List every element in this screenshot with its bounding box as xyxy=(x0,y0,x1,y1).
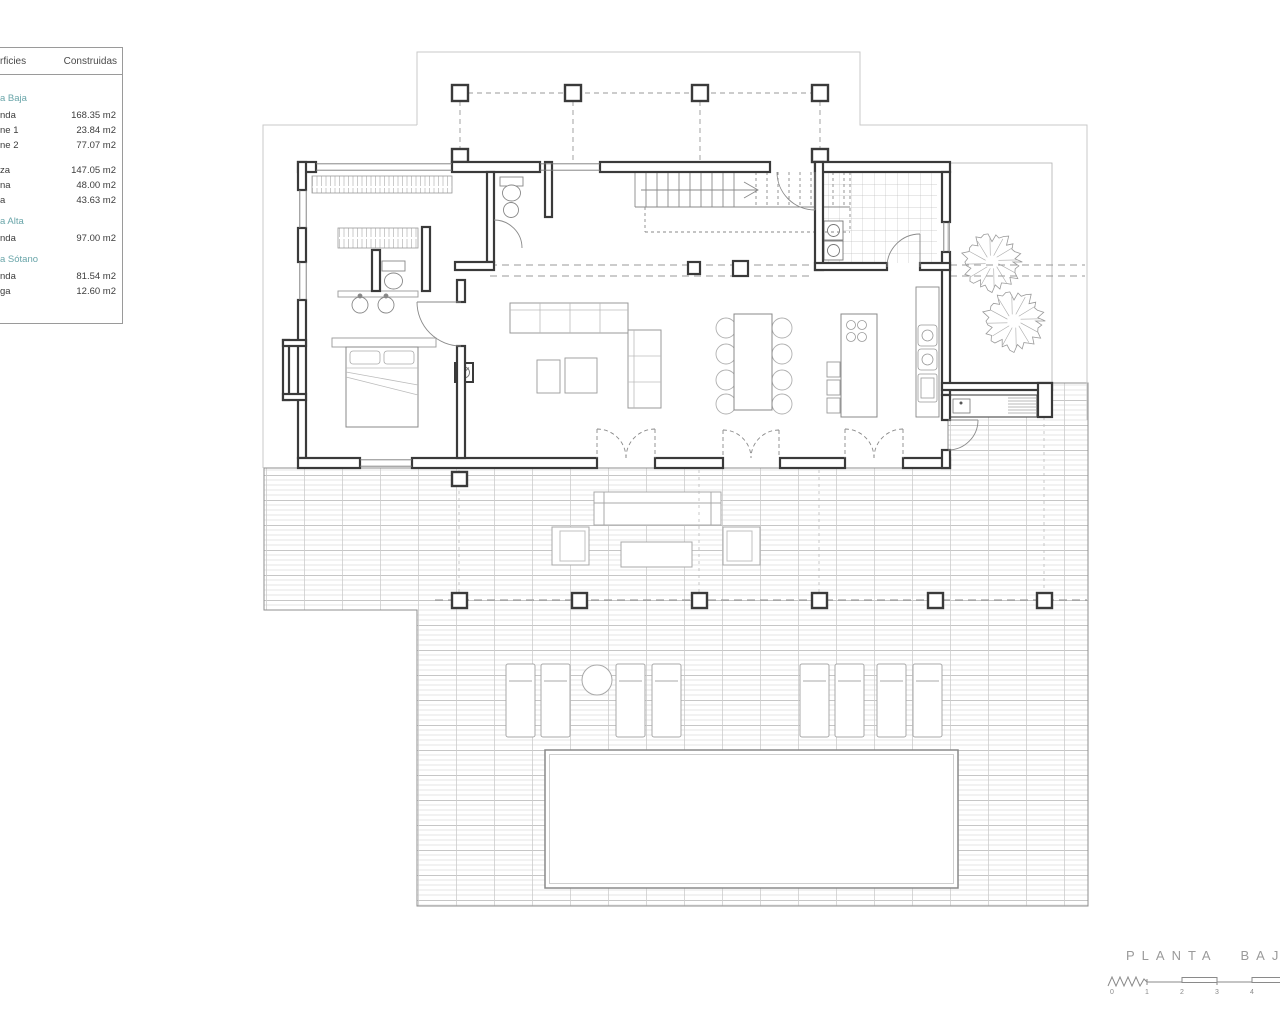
top-porch xyxy=(452,85,828,162)
legend-row-label: za xyxy=(0,163,10,178)
legend-table: rficies Construidas a Bajanda168.35 m2ne… xyxy=(0,47,123,324)
legend-row-value: 168.35 m2 xyxy=(71,108,122,123)
chair xyxy=(772,318,792,338)
swimming-pool xyxy=(545,750,958,888)
dining-area xyxy=(716,314,792,414)
column xyxy=(452,593,467,608)
bedroom xyxy=(332,338,436,427)
kitchen-island xyxy=(841,314,877,417)
sofa xyxy=(628,330,661,408)
legend-row-value: 77.07 m2 xyxy=(76,138,122,153)
stool xyxy=(827,398,840,413)
legend-row: nda168.35 m2 xyxy=(0,108,122,123)
scale-number: 3 xyxy=(1215,989,1219,996)
scale-bar xyxy=(1108,977,1280,986)
entry-door xyxy=(777,172,815,210)
scale-number: 0 xyxy=(1110,989,1114,996)
legend-row: ga12.60 m2 xyxy=(0,284,122,299)
pillow xyxy=(350,351,380,364)
chair xyxy=(716,344,736,364)
lounger xyxy=(913,664,942,737)
chair xyxy=(716,318,736,338)
pillow xyxy=(384,351,414,364)
lounger xyxy=(877,664,906,737)
pouf xyxy=(565,358,597,393)
lounger xyxy=(800,664,829,737)
plan-title: PLANTA BAJA xyxy=(1126,948,1280,963)
toilet xyxy=(382,261,405,271)
lounger xyxy=(835,664,864,737)
legend-col-construidas: Construidas xyxy=(64,56,122,67)
guest-wc xyxy=(500,177,523,218)
legend-col-superficies: rficies xyxy=(0,56,26,67)
chair xyxy=(772,344,792,364)
column xyxy=(452,472,467,486)
legend-row-value: 81.54 m2 xyxy=(76,269,122,284)
kitchen xyxy=(827,287,939,417)
floor-plan-canvas: 01234 rficies Construidas a Bajanda168.3… xyxy=(0,0,1280,1024)
column xyxy=(565,85,581,101)
sink xyxy=(504,203,519,218)
legend-row: za147.05 m2 xyxy=(0,163,122,178)
scale-number: 2 xyxy=(1180,989,1184,996)
legend-row-value: 12.60 m2 xyxy=(76,284,122,299)
legend-row-value: 43.63 m2 xyxy=(76,193,122,208)
sink xyxy=(352,297,368,313)
pouf xyxy=(537,360,560,393)
living-room xyxy=(510,303,661,408)
scale-numbers: 01234 xyxy=(1110,989,1254,996)
legend-row-label: nda xyxy=(0,269,16,284)
legend-row-label: ne 1 xyxy=(0,123,19,138)
wc-door xyxy=(494,220,522,248)
scale-number: 1 xyxy=(1145,989,1149,996)
column xyxy=(733,261,748,276)
column xyxy=(812,593,827,608)
column xyxy=(452,149,468,162)
outdoor-sofa xyxy=(594,492,721,525)
legend-row: nda97.00 m2 xyxy=(0,231,122,246)
legend-section-title: a Alta xyxy=(0,214,122,229)
legend-row-label: ne 2 xyxy=(0,138,19,153)
folding-doors xyxy=(597,429,903,458)
stool xyxy=(827,380,840,395)
chair xyxy=(772,370,792,390)
headboard-shelf xyxy=(332,338,436,347)
column xyxy=(1037,593,1052,608)
scale-number: 4 xyxy=(1250,989,1254,996)
legend-row-value: 97.00 m2 xyxy=(76,231,122,246)
column xyxy=(692,85,708,101)
legend-row-value: 23.84 m2 xyxy=(76,123,122,138)
legend-row: nda81.54 m2 xyxy=(0,269,122,284)
legend-section-title: a Baja xyxy=(0,91,122,106)
stool xyxy=(827,362,840,377)
column xyxy=(688,262,700,274)
column xyxy=(812,85,828,101)
dining-table xyxy=(734,314,772,410)
chair xyxy=(772,394,792,414)
floor-plan-drawing: 01234 xyxy=(0,0,1280,1024)
scale-squiggle xyxy=(1108,977,1147,986)
legend-header: rficies Construidas xyxy=(0,48,122,75)
lounger xyxy=(541,664,570,737)
coffee-table xyxy=(621,542,692,567)
lounger xyxy=(652,664,681,737)
legend-row-label: a xyxy=(0,193,5,208)
lounger xyxy=(616,664,645,737)
column xyxy=(692,593,707,608)
wardrobe xyxy=(338,228,418,248)
legend-row-value: 48.00 m2 xyxy=(76,178,122,193)
sofa xyxy=(510,303,628,333)
chair xyxy=(716,394,736,414)
legend-section-title: a Sótano xyxy=(0,252,122,267)
column xyxy=(928,593,943,608)
lounger xyxy=(506,664,535,737)
courtyard xyxy=(948,163,1052,383)
legend-row-label: na xyxy=(0,178,11,193)
column xyxy=(452,85,468,101)
hall-closet xyxy=(312,176,452,193)
column xyxy=(572,593,587,608)
chair xyxy=(716,370,736,390)
legend-row-label: ga xyxy=(0,284,11,299)
legend-row: na48.00 m2 xyxy=(0,178,122,193)
legend-row-label: nda xyxy=(0,108,16,123)
legend-row: a43.63 m2 xyxy=(0,193,122,208)
legend-row-value: 147.05 m2 xyxy=(71,163,122,178)
legend-row: ne 123.84 m2 xyxy=(0,123,122,138)
legend-row-label: nda xyxy=(0,231,16,246)
column xyxy=(812,149,828,162)
legend-body: a Bajanda168.35 m2ne 123.84 m2ne 277.07 … xyxy=(0,75,122,299)
legend-row: ne 277.07 m2 xyxy=(0,138,122,153)
sink xyxy=(378,297,394,313)
kitchen-counter xyxy=(916,287,939,417)
outdoor-kitchen xyxy=(948,395,1037,417)
round-side-table xyxy=(582,665,612,695)
